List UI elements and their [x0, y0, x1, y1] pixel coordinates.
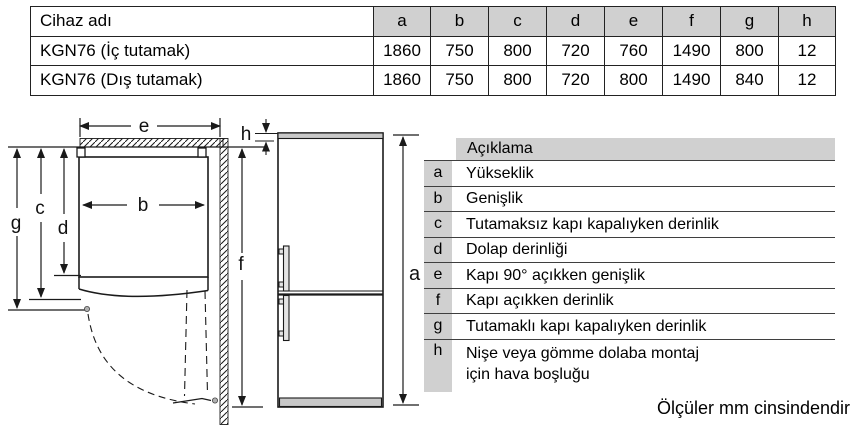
- door-open-bottom: [173, 399, 211, 404]
- legend-table: Açıklama a Yükseklik b Genişlik c Tutama…: [424, 138, 835, 392]
- dimension-value-cell: 840: [721, 66, 779, 96]
- legend-row: d Dolap derinliği: [424, 237, 835, 263]
- legend-key: e: [424, 263, 452, 288]
- col-header-g: g: [721, 7, 779, 37]
- col-header-h: h: [779, 7, 836, 37]
- dim-label-b: b: [138, 195, 149, 216]
- table-row: KGN76 (Dış tutamak) 1860 750 800 720 800…: [31, 66, 836, 96]
- technical-drawing: e b g c d f: [5, 112, 425, 428]
- legend-key: a: [424, 161, 452, 186]
- table-header-row: Cihaz adı a b c d e f g h: [31, 7, 836, 37]
- door-hinge-closed: [84, 306, 89, 311]
- legend-key: h: [424, 340, 452, 392]
- legend-key: b: [424, 187, 452, 212]
- dimension-value-cell: 1490: [663, 36, 721, 66]
- legend-key: f: [424, 289, 452, 314]
- top-view-diagram: e b g c d f: [8, 116, 268, 425]
- dim-label-c: c: [35, 198, 45, 219]
- legend-desc: Nişe veya gömme dolaba montaj için hava …: [456, 340, 835, 392]
- fridge-plinth: [280, 398, 382, 407]
- legend-desc: Kapı 90° açıkken genişlik: [456, 263, 835, 288]
- legend-desc: Tutamaksız kapı kapalıyken derinlik: [456, 212, 835, 237]
- wall-spacer-right: [198, 148, 206, 157]
- legend-desc: Kapı açıkken derinlik: [456, 289, 835, 314]
- dim-h-ticks: [255, 134, 278, 142]
- device-dimensions-table: Cihaz adı a b c d e f g h KGN76 (İç tuta…: [30, 6, 836, 96]
- legend-desc: Tutamaklı kapı kapalıyken derinlik: [456, 314, 835, 339]
- fridge-top-strip: [278, 133, 383, 139]
- front-view-diagram: a h: [241, 119, 421, 407]
- legend-row: g Tutamaklı kapı kapalıyken derinlik: [424, 313, 835, 339]
- table-row: KGN76 (İç tutamak) 1860 750 800 720 760 …: [31, 36, 836, 66]
- appliance-dimension-sheet: Cihaz adı a b c d e f g h KGN76 (İç tuta…: [0, 0, 855, 428]
- dimension-value-cell: 12: [779, 66, 836, 96]
- legend-row: e Kapı 90° açıkken genişlik: [424, 262, 835, 288]
- dimension-value-cell: 800: [605, 66, 663, 96]
- door-hinge-open: [212, 398, 217, 403]
- legend-desc: Genişlik: [456, 187, 835, 212]
- col-header-a: a: [374, 7, 431, 37]
- wall-hatch-right: [220, 139, 228, 425]
- dimension-value-cell: 750: [431, 36, 489, 66]
- device-name: KGN76 (Dış tutamak): [31, 66, 374, 96]
- dimension-value-cell: 760: [605, 36, 663, 66]
- dimension-value-cell: 1490: [663, 66, 721, 96]
- legend-row: f Kapı açıkken derinlik: [424, 288, 835, 314]
- dim-label-e: e: [139, 116, 150, 137]
- dimension-value-cell: 1860: [374, 36, 431, 66]
- device-col-header: Cihaz adı: [31, 7, 374, 37]
- legend-key: c: [424, 212, 452, 237]
- fridge-body-top-view: [79, 157, 208, 277]
- dimension-value-cell: 720: [547, 36, 605, 66]
- dim-label-h: h: [241, 124, 252, 145]
- legend-header-row: Açıklama: [424, 138, 835, 160]
- col-header-b: b: [431, 7, 489, 37]
- fridge-front-outline: [278, 133, 383, 407]
- legend-row: h Nişe veya gömme dolaba montaj için hav…: [424, 339, 835, 392]
- col-header-e: e: [605, 7, 663, 37]
- dimension-value-cell: 720: [547, 66, 605, 96]
- device-name: KGN76 (İç tutamak): [31, 36, 374, 66]
- legend-key: d: [424, 238, 452, 263]
- door-open-edge2: [205, 291, 208, 394]
- legend-row: b Genişlik: [424, 186, 835, 212]
- dim-label-g: g: [11, 213, 22, 234]
- dim-label-f: f: [238, 254, 244, 275]
- wall-hatch-top: [80, 139, 223, 148]
- door-open-edge1: [185, 290, 188, 396]
- legend-header-spacer: [424, 138, 456, 160]
- door-closed: [79, 277, 208, 296]
- legend-row: c Tutamaksız kapı kapalıyken derinlik: [424, 211, 835, 237]
- dimension-value-cell: 1860: [374, 66, 431, 96]
- col-header-c: c: [489, 7, 547, 37]
- col-header-d: d: [547, 7, 605, 37]
- legend-desc: Dolap derinliği: [456, 238, 835, 263]
- wall-spacer-left: [77, 148, 85, 157]
- legend-row: a Yükseklik: [424, 160, 835, 186]
- dim-label-a: a: [409, 263, 421, 285]
- dimension-value-cell: 750: [431, 66, 489, 96]
- dimension-value-cell: 800: [489, 36, 547, 66]
- legend-header-title: Açıklama: [456, 138, 835, 160]
- door-swing-arc: [88, 314, 195, 404]
- legend-desc: Yükseklik: [456, 161, 835, 186]
- dim-label-d: d: [58, 218, 69, 239]
- dimension-value-cell: 800: [721, 36, 779, 66]
- dimension-value-cell: 12: [779, 36, 836, 66]
- col-header-f: f: [663, 7, 721, 37]
- units-note: Ölçüler mm cinsindendir: [628, 398, 850, 419]
- legend-key: g: [424, 314, 452, 339]
- dimension-value-cell: 800: [489, 66, 547, 96]
- dim-e-ticks: [80, 118, 220, 137]
